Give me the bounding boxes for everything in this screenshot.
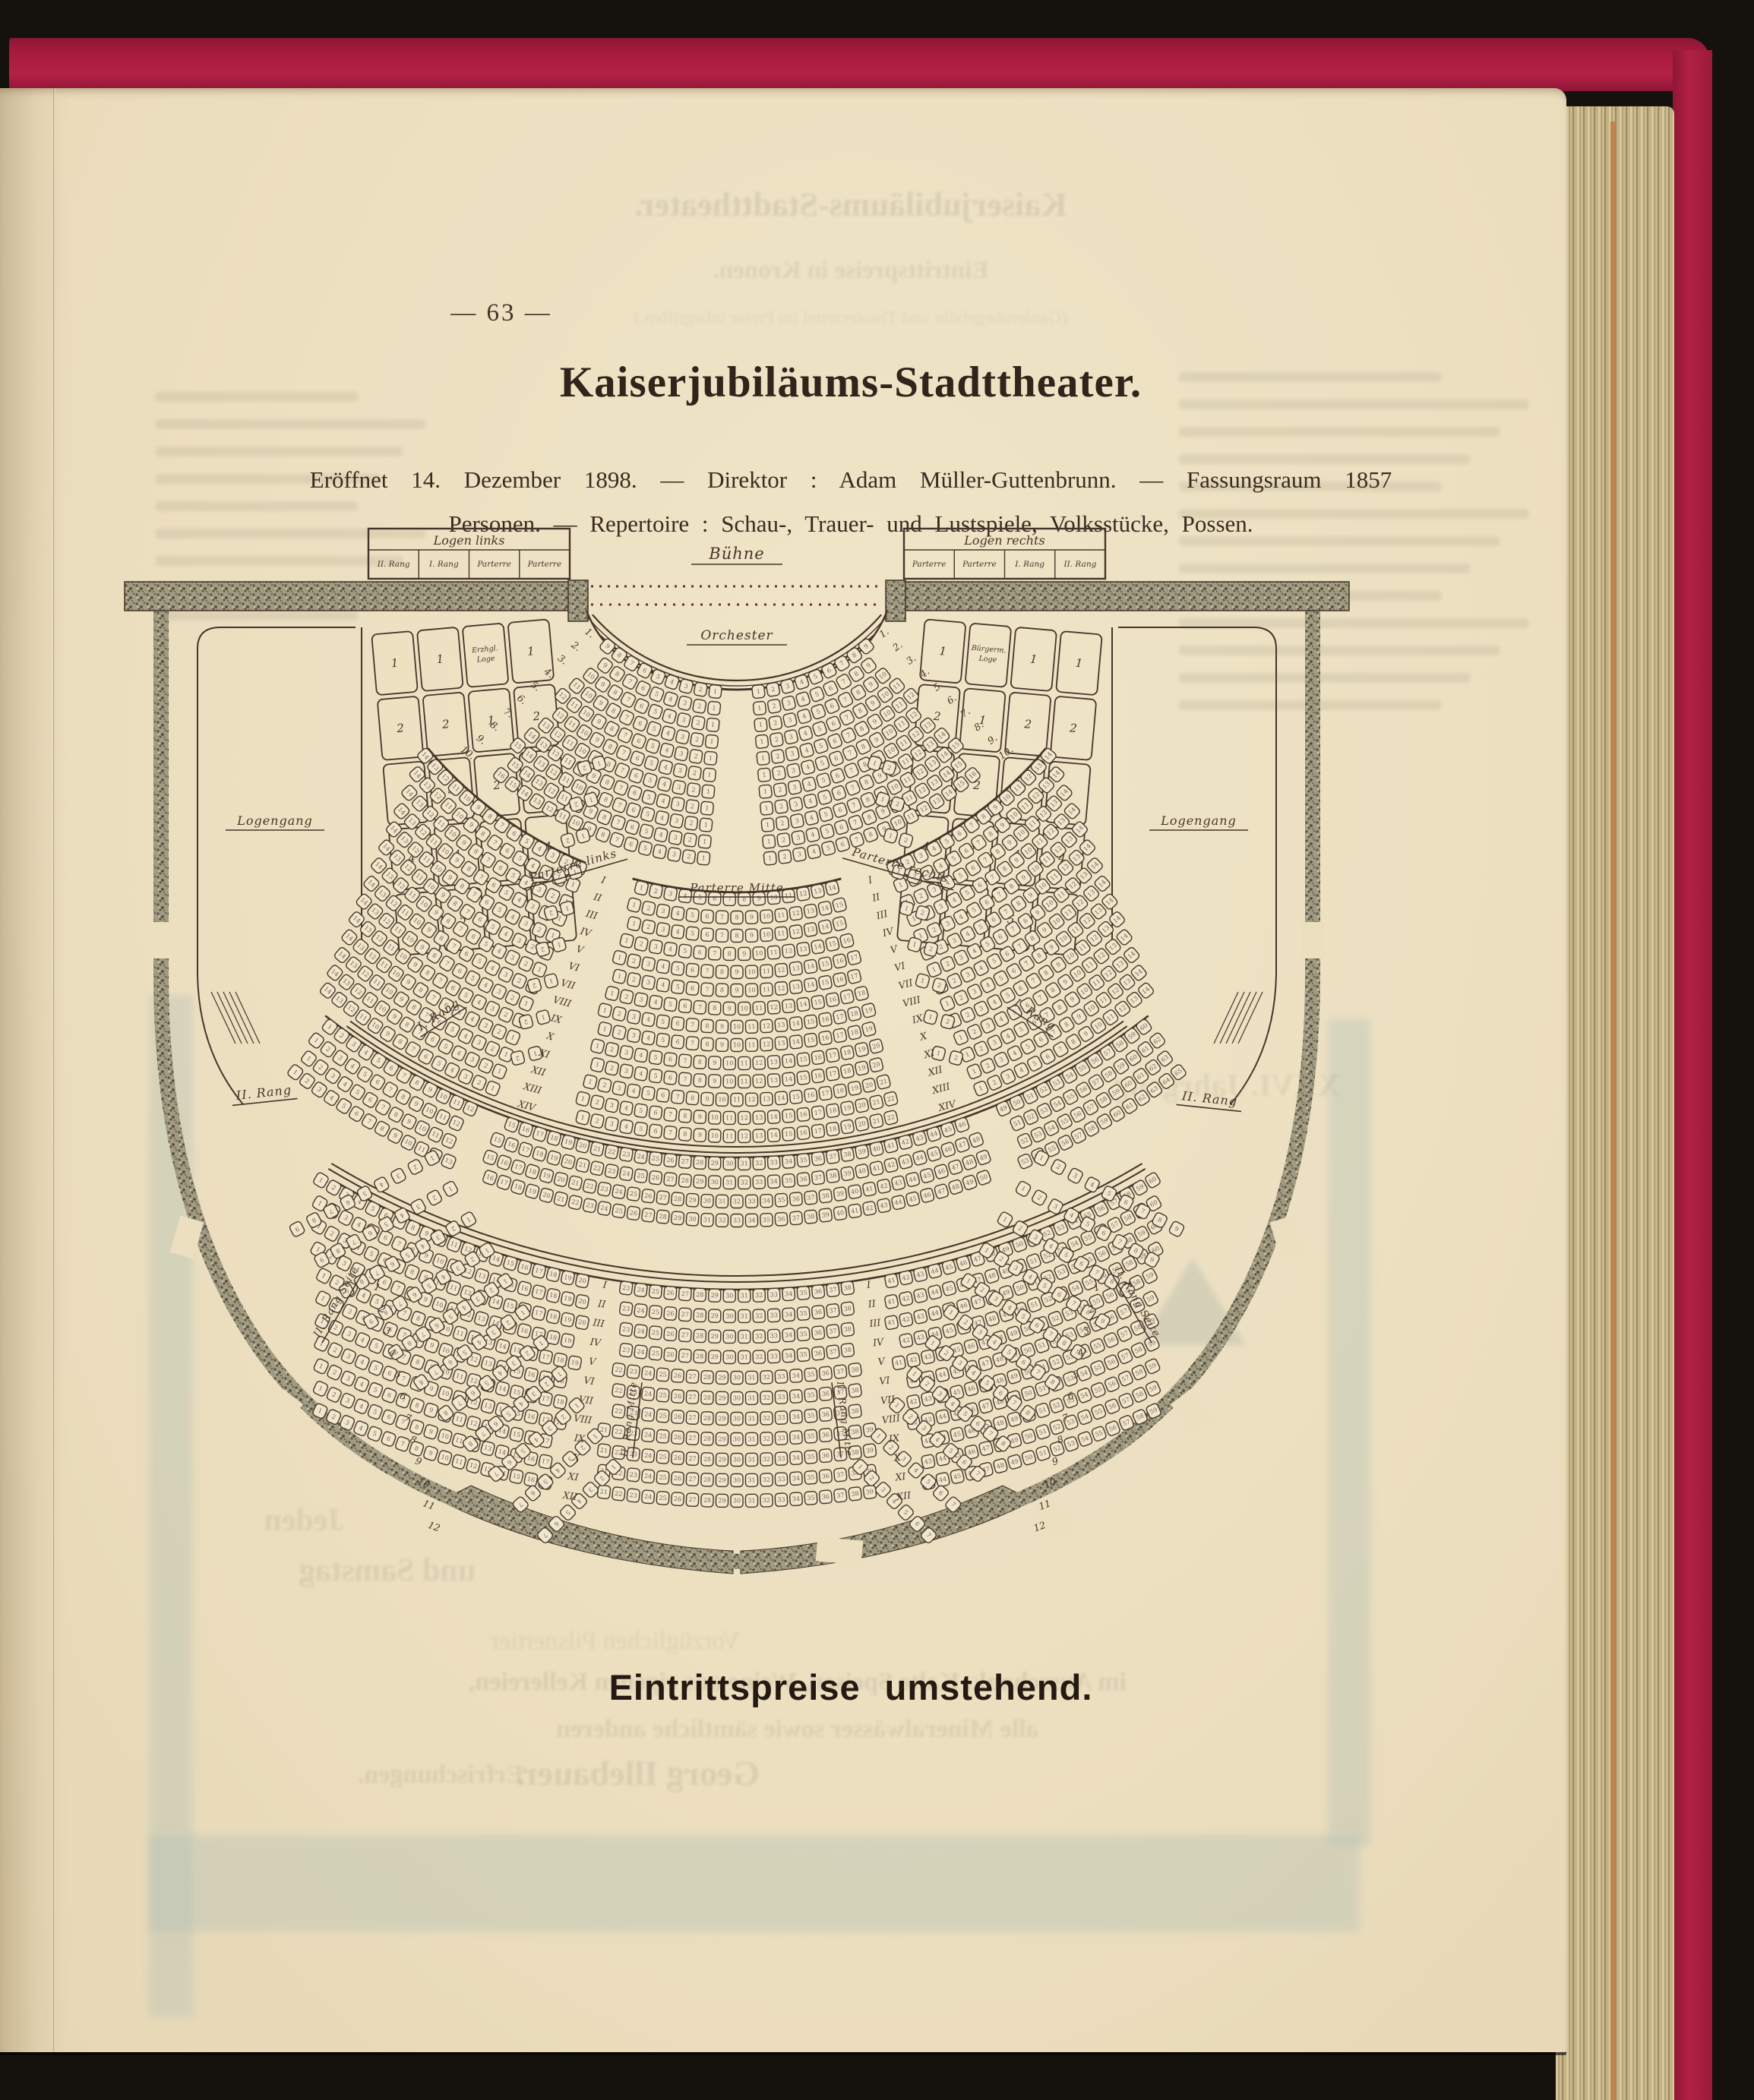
svg-text:18: 18 — [843, 1067, 852, 1075]
svg-text:13: 13 — [777, 1022, 785, 1029]
svg-text:VIII: VIII — [573, 1412, 593, 1426]
svg-text:26: 26 — [666, 1157, 675, 1164]
svg-text:32: 32 — [763, 1456, 770, 1463]
page-fore-edge-accent-stripe — [1610, 122, 1615, 2100]
svg-text:14: 14 — [806, 981, 814, 989]
svg-text:34: 34 — [785, 1158, 793, 1166]
svg-text:28: 28 — [703, 1497, 711, 1504]
svg-text:11: 11 — [747, 1041, 755, 1048]
svg-text:31: 31 — [747, 1394, 755, 1401]
svg-text:12: 12 — [770, 1003, 778, 1011]
svg-text:35: 35 — [785, 1177, 793, 1185]
svg-text:23: 23 — [622, 1325, 630, 1333]
svg-text:Logengang: Logengang — [236, 813, 313, 828]
svg-text:8: 8 — [691, 1094, 695, 1101]
svg-text:1: 1 — [706, 788, 710, 795]
svg-text:1: 1 — [712, 705, 716, 712]
svg-text:39: 39 — [858, 1148, 867, 1156]
svg-text:22: 22 — [615, 1366, 623, 1373]
svg-text:43: 43 — [924, 1457, 933, 1466]
svg-text:X: X — [918, 1030, 929, 1043]
svg-text:24: 24 — [644, 1432, 653, 1439]
svg-text:1: 1 — [708, 755, 713, 762]
page-gutter-crease — [53, 88, 55, 2052]
svg-text:25: 25 — [637, 1172, 645, 1179]
svg-text:27: 27 — [681, 1290, 689, 1298]
svg-text:11: 11 — [763, 968, 771, 975]
svg-text:12: 12 — [792, 928, 800, 936]
svg-text:1: 1 — [762, 772, 766, 778]
svg-text:38: 38 — [843, 1347, 852, 1354]
svg-text:37: 37 — [836, 1368, 845, 1375]
svg-text:32: 32 — [755, 1333, 763, 1340]
svg-text:25: 25 — [651, 1309, 659, 1316]
svg-text:33: 33 — [733, 1217, 741, 1224]
bleed-text: Georg Illebauer. — [349, 1753, 927, 1793]
svg-text:Logengang: Logengang — [1160, 813, 1237, 828]
page-gutter-shadow — [0, 88, 68, 2052]
label-rang2-links: II. Rang — [231, 1082, 298, 1106]
svg-text:24: 24 — [637, 1328, 645, 1335]
svg-text:21: 21 — [599, 1488, 608, 1495]
svg-text:27: 27 — [688, 1476, 697, 1483]
svg-text:2: 2 — [1068, 721, 1077, 735]
svg-text:39: 39 — [843, 1170, 852, 1178]
svg-text:34: 34 — [763, 1197, 771, 1204]
svg-text:37: 37 — [836, 1492, 845, 1499]
svg-text:33: 33 — [777, 1373, 785, 1381]
svg-text:1: 1 — [761, 755, 766, 762]
svg-text:28: 28 — [703, 1476, 711, 1483]
svg-text:33: 33 — [770, 1159, 778, 1167]
bleed-text: alle Mineralwässer sowie sämtliche ander… — [175, 1715, 1421, 1744]
svg-text:7: 7 — [720, 932, 724, 939]
svg-text:11: 11 — [741, 1059, 748, 1066]
svg-text:34: 34 — [785, 1352, 793, 1359]
svg-text:9: 9 — [697, 1132, 702, 1138]
svg-text:I: I — [866, 873, 874, 886]
svg-text:9: 9 — [705, 1095, 710, 1102]
svg-text:VI: VI — [567, 960, 581, 974]
svg-text:10: 10 — [718, 1096, 725, 1103]
book-page: Kaiserjubiläums-Stadttheater.Eintrittspr… — [0, 88, 1566, 2052]
svg-text:41: 41 — [887, 1297, 896, 1306]
svg-text:30: 30 — [725, 1160, 733, 1167]
svg-text:VI: VI — [583, 1374, 596, 1387]
svg-text:34: 34 — [792, 1372, 801, 1380]
svg-text:30: 30 — [725, 1292, 733, 1299]
svg-text:29: 29 — [718, 1456, 725, 1463]
svg-text:25: 25 — [659, 1473, 667, 1481]
svg-text:2.: 2. — [890, 639, 904, 654]
svg-text:23: 23 — [622, 1284, 630, 1292]
svg-text:34: 34 — [792, 1434, 801, 1442]
svg-text:6.: 6. — [944, 692, 959, 706]
svg-text:24: 24 — [637, 1307, 645, 1315]
svg-text:9.: 9. — [475, 732, 489, 747]
svg-text:35: 35 — [807, 1453, 815, 1461]
svg-text:25: 25 — [651, 1350, 659, 1357]
svg-text:9: 9 — [750, 914, 754, 921]
svg-text:35: 35 — [799, 1157, 807, 1164]
svg-text:XIV: XIV — [937, 1097, 959, 1113]
svg-text:17: 17 — [836, 1013, 845, 1022]
svg-text:7: 7 — [691, 1022, 695, 1028]
label-orchester: Orchester — [687, 628, 787, 645]
svg-text:32: 32 — [741, 1179, 748, 1186]
svg-text:33: 33 — [770, 1291, 778, 1298]
svg-text:36: 36 — [821, 1473, 830, 1480]
svg-text:12: 12 — [777, 966, 785, 974]
svg-text:32: 32 — [755, 1292, 763, 1299]
svg-text:V: V — [877, 1355, 887, 1367]
svg-text:30: 30 — [725, 1353, 733, 1360]
svg-text:7: 7 — [713, 950, 717, 957]
svg-text:36: 36 — [814, 1154, 822, 1162]
svg-text:32: 32 — [763, 1374, 770, 1381]
svg-text:6: 6 — [691, 967, 695, 974]
svg-text:8: 8 — [735, 914, 738, 921]
svg-text:7: 7 — [691, 1040, 695, 1047]
svg-text:1: 1 — [707, 772, 712, 778]
svg-text:VII: VII — [880, 1393, 896, 1406]
svg-text:10: 10 — [733, 1024, 741, 1031]
svg-text:32: 32 — [763, 1394, 770, 1401]
svg-text:12: 12 — [799, 890, 808, 898]
svg-text:38: 38 — [843, 1325, 852, 1333]
svg-text:35: 35 — [799, 1310, 807, 1318]
svg-text:24: 24 — [644, 1493, 653, 1501]
svg-text:31: 31 — [747, 1476, 755, 1483]
svg-text:7: 7 — [683, 1075, 687, 1082]
svg-text:14: 14 — [785, 1075, 793, 1083]
svg-text:II. Rang: II. Rang — [377, 560, 410, 569]
svg-text:8: 8 — [697, 1077, 702, 1084]
svg-text:16: 16 — [799, 1129, 807, 1136]
svg-text:15: 15 — [814, 998, 822, 1006]
label-buehne: Bühne — [691, 545, 782, 564]
svg-text:23: 23 — [622, 1305, 630, 1312]
svg-text:13: 13 — [763, 1095, 771, 1102]
svg-text:31: 31 — [747, 1415, 755, 1422]
svg-text:19: 19 — [843, 1104, 852, 1113]
svg-text:24: 24 — [644, 1473, 653, 1480]
svg-text:29: 29 — [688, 1196, 697, 1204]
svg-text:14: 14 — [799, 1000, 807, 1008]
svg-text:23: 23 — [622, 1347, 630, 1354]
svg-text:32: 32 — [718, 1217, 725, 1224]
svg-text:34: 34 — [792, 1454, 801, 1462]
svg-text:40: 40 — [836, 1209, 844, 1217]
svg-text:1: 1 — [758, 722, 763, 728]
svg-text:2: 2 — [932, 709, 941, 724]
svg-text:39: 39 — [821, 1211, 830, 1219]
svg-text:30: 30 — [733, 1436, 741, 1443]
book-cover-right-edge — [1673, 50, 1712, 2100]
svg-text:27: 27 — [681, 1311, 689, 1318]
svg-text:6: 6 — [683, 1003, 687, 1009]
svg-text:9: 9 — [728, 1005, 732, 1012]
svg-text:IV: IV — [579, 925, 594, 939]
svg-text:17: 17 — [821, 1089, 830, 1097]
svg-text:4.: 4. — [917, 665, 931, 681]
svg-text:13: 13 — [770, 1059, 778, 1066]
svg-text:28: 28 — [703, 1394, 711, 1401]
svg-text:21: 21 — [599, 1447, 608, 1454]
svg-text:5: 5 — [697, 894, 702, 901]
svg-text:9: 9 — [697, 1113, 702, 1120]
svg-text:27: 27 — [644, 1211, 653, 1219]
svg-text:7: 7 — [705, 968, 710, 974]
svg-text:12: 12 — [755, 1059, 763, 1066]
svg-text:16: 16 — [799, 1110, 807, 1118]
svg-text:17: 17 — [828, 1069, 837, 1078]
svg-text:12: 12 — [763, 1022, 771, 1030]
section-parquet-links: 1234567891234567891234567891012345678910… — [492, 637, 722, 865]
svg-text:8: 8 — [705, 1022, 710, 1029]
svg-text:33: 33 — [755, 1179, 763, 1186]
svg-text:7: 7 — [705, 986, 710, 993]
svg-text:1: 1 — [703, 821, 708, 828]
svg-text:41: 41 — [851, 1207, 860, 1215]
svg-text:24: 24 — [600, 1205, 609, 1213]
svg-text:IV: IV — [589, 1336, 603, 1349]
svg-text:11: 11 — [733, 1097, 741, 1104]
svg-text:III: III — [874, 908, 890, 922]
bleed-bar — [156, 419, 425, 429]
svg-text:37: 37 — [829, 1286, 837, 1293]
svg-text:9.: 9. — [985, 732, 1000, 747]
svg-text:I. Rang: I. Rang — [1014, 560, 1044, 569]
svg-text:15: 15 — [807, 1018, 815, 1025]
svg-text:33: 33 — [777, 1394, 785, 1401]
svg-text:6.: 6. — [515, 692, 529, 706]
svg-text:1: 1 — [939, 644, 947, 658]
svg-text:30: 30 — [711, 1179, 719, 1186]
svg-text:13: 13 — [755, 1132, 763, 1139]
svg-text:1: 1 — [766, 821, 770, 828]
svg-text:1: 1 — [526, 644, 535, 658]
svg-text:Bühne: Bühne — [708, 545, 764, 563]
svg-text:2.: 2. — [569, 638, 583, 653]
proscenium-walls — [125, 580, 1349, 621]
svg-text:27: 27 — [681, 1352, 689, 1359]
svg-text:23: 23 — [600, 1185, 609, 1193]
svg-text:13: 13 — [806, 907, 815, 915]
svg-text:11: 11 — [755, 1005, 763, 1012]
svg-text:36: 36 — [799, 1176, 807, 1183]
svg-text:1: 1 — [711, 722, 716, 728]
svg-text:28: 28 — [703, 1415, 711, 1422]
svg-text:25: 25 — [615, 1207, 624, 1215]
svg-text:11: 11 — [725, 1114, 733, 1121]
svg-text:21: 21 — [599, 1426, 608, 1434]
svg-text:VIII: VIII — [901, 993, 922, 1009]
svg-text:30: 30 — [733, 1477, 741, 1484]
svg-text:I: I — [602, 1278, 608, 1290]
svg-text:8: 8 — [713, 1005, 716, 1012]
svg-text:22: 22 — [615, 1387, 623, 1394]
svg-text:III: III — [868, 1316, 883, 1329]
svg-text:38: 38 — [807, 1213, 815, 1221]
svg-text:29: 29 — [718, 1394, 725, 1401]
svg-text:41: 41 — [894, 1359, 903, 1367]
bleed-bar — [156, 447, 403, 456]
svg-text:29: 29 — [711, 1312, 719, 1319]
svg-text:26: 26 — [674, 1372, 682, 1380]
svg-text:27: 27 — [666, 1176, 675, 1183]
svg-text:35: 35 — [807, 1473, 815, 1481]
svg-text:11: 11 — [770, 949, 778, 956]
svg-text:20: 20 — [578, 1318, 587, 1327]
svg-text:31: 31 — [747, 1374, 755, 1381]
svg-text:16: 16 — [821, 1015, 830, 1024]
svg-text:VII: VII — [560, 977, 577, 992]
header-box-logen-links: Logen linksII. RangI. RangParterreParter… — [368, 529, 570, 579]
svg-text:36: 36 — [814, 1309, 823, 1316]
svg-text:35: 35 — [777, 1196, 785, 1204]
svg-text:14: 14 — [785, 1057, 793, 1065]
svg-text:II: II — [871, 890, 882, 904]
svg-text:24: 24 — [644, 1410, 653, 1418]
svg-text:31: 31 — [703, 1217, 712, 1224]
svg-text:28: 28 — [659, 1213, 667, 1221]
svg-text:6: 6 — [668, 1074, 672, 1082]
svg-text:37: 37 — [836, 1471, 845, 1479]
svg-text:3.: 3. — [556, 652, 570, 667]
svg-text:10: 10 — [770, 894, 778, 902]
svg-text:34: 34 — [792, 1475, 801, 1483]
svg-text:31: 31 — [741, 1160, 748, 1167]
svg-text:32: 32 — [763, 1497, 770, 1504]
svg-text:XII: XII — [926, 1063, 944, 1078]
svg-text:38: 38 — [821, 1192, 830, 1200]
svg-text:10: 10 — [725, 1059, 733, 1066]
svg-text:33: 33 — [777, 1414, 785, 1421]
svg-text:27: 27 — [688, 1373, 697, 1381]
svg-text:10: 10 — [733, 1042, 741, 1049]
svg-text:26: 26 — [666, 1331, 675, 1338]
svg-text:IX: IX — [910, 1012, 924, 1026]
page-fore-edge-stack — [1556, 106, 1674, 2100]
svg-text:30: 30 — [733, 1395, 741, 1402]
svg-text:30: 30 — [725, 1333, 733, 1340]
svg-text:35: 35 — [807, 1495, 815, 1502]
svg-text:12: 12 — [763, 1041, 771, 1048]
svg-text:29: 29 — [711, 1160, 719, 1167]
svg-text:31: 31 — [741, 1333, 748, 1340]
svg-text:Parterre: Parterre — [912, 560, 947, 569]
svg-text:36: 36 — [814, 1329, 823, 1337]
svg-text:29: 29 — [711, 1333, 719, 1340]
svg-text:37: 37 — [814, 1174, 822, 1182]
svg-text:41: 41 — [887, 1277, 896, 1285]
intro-line-1: Eröffnet 14. Dezember 1898. — Direktor :… — [91, 466, 1610, 494]
svg-text:14: 14 — [777, 1094, 785, 1102]
svg-text:26: 26 — [674, 1454, 682, 1462]
svg-text:32: 32 — [733, 1198, 741, 1205]
svg-text:33: 33 — [777, 1476, 785, 1483]
svg-text:23: 23 — [607, 1167, 616, 1176]
svg-text:9: 9 — [713, 1059, 716, 1066]
svg-text:17: 17 — [814, 1127, 822, 1135]
svg-text:22: 22 — [615, 1490, 623, 1498]
svg-text:Bürgerm.: Bürgerm. — [970, 644, 1007, 655]
svg-text:16: 16 — [807, 1091, 815, 1099]
svg-text:41: 41 — [865, 1185, 874, 1193]
svg-text:36: 36 — [777, 1215, 785, 1223]
svg-text:12: 12 — [755, 1078, 763, 1085]
svg-text:32: 32 — [763, 1476, 770, 1483]
svg-text:1: 1 — [436, 652, 444, 667]
svg-text:38: 38 — [851, 1387, 859, 1394]
svg-text:9: 9 — [720, 1023, 724, 1030]
svg-text:36: 36 — [792, 1195, 800, 1203]
svg-text:38: 38 — [851, 1407, 859, 1415]
svg-text:29: 29 — [711, 1292, 719, 1299]
svg-text:9: 9 — [720, 1041, 724, 1048]
svg-text:15: 15 — [785, 1130, 793, 1138]
svg-text:32: 32 — [763, 1415, 770, 1422]
svg-text:II: II — [596, 1297, 607, 1309]
svg-text:11: 11 — [741, 1078, 748, 1085]
svg-text:3.: 3. — [904, 652, 918, 667]
svg-text:24: 24 — [637, 1153, 645, 1161]
svg-text:24: 24 — [637, 1348, 645, 1356]
svg-text:28: 28 — [681, 1177, 689, 1185]
svg-text:Loge: Loge — [978, 655, 997, 665]
svg-text:19: 19 — [843, 1123, 852, 1131]
bleed-text: Erfrischungen. — [175, 1761, 706, 1789]
svg-text:6: 6 — [705, 931, 710, 938]
svg-text:1: 1 — [756, 688, 760, 695]
svg-text:33: 33 — [747, 1198, 755, 1205]
svg-text:33: 33 — [770, 1332, 778, 1339]
svg-text:25: 25 — [629, 1190, 637, 1198]
svg-text:18: 18 — [836, 1087, 845, 1095]
svg-text:32: 32 — [763, 1435, 770, 1442]
svg-text:31: 31 — [741, 1292, 748, 1299]
svg-text:7: 7 — [720, 914, 724, 921]
svg-text:38: 38 — [851, 1366, 859, 1373]
svg-text:VIII: VIII — [552, 993, 574, 1009]
svg-text:33: 33 — [770, 1353, 778, 1359]
svg-text:1: 1 — [766, 838, 771, 845]
svg-text:VII: VII — [578, 1393, 595, 1406]
svg-text:10: 10 — [763, 931, 771, 939]
svg-text:37: 37 — [829, 1153, 837, 1161]
svg-text:24: 24 — [622, 1170, 630, 1178]
svg-text:10: 10 — [711, 1132, 719, 1139]
svg-text:6: 6 — [705, 913, 710, 920]
svg-text:30: 30 — [688, 1215, 697, 1223]
svg-text:35: 35 — [807, 1371, 815, 1378]
svg-text:1: 1 — [1075, 656, 1083, 671]
svg-text:39: 39 — [865, 1426, 874, 1434]
label-parterre-mitte: Parterre Mitte — [679, 881, 795, 897]
svg-text:11: 11 — [777, 911, 785, 919]
svg-text:25: 25 — [659, 1412, 667, 1419]
svg-text:6: 6 — [675, 1038, 680, 1045]
svg-text:23: 23 — [629, 1471, 637, 1479]
svg-text:10: 10 — [747, 968, 755, 975]
svg-text:30: 30 — [703, 1197, 712, 1204]
svg-text:39: 39 — [865, 1447, 874, 1454]
section-parquet-rechts: 1234567891234567891234567891012345678910… — [752, 637, 981, 865]
svg-text:11: 11 — [747, 1023, 755, 1030]
svg-text:10: 10 — [711, 1114, 719, 1121]
svg-text:Orchester: Orchester — [700, 628, 773, 643]
